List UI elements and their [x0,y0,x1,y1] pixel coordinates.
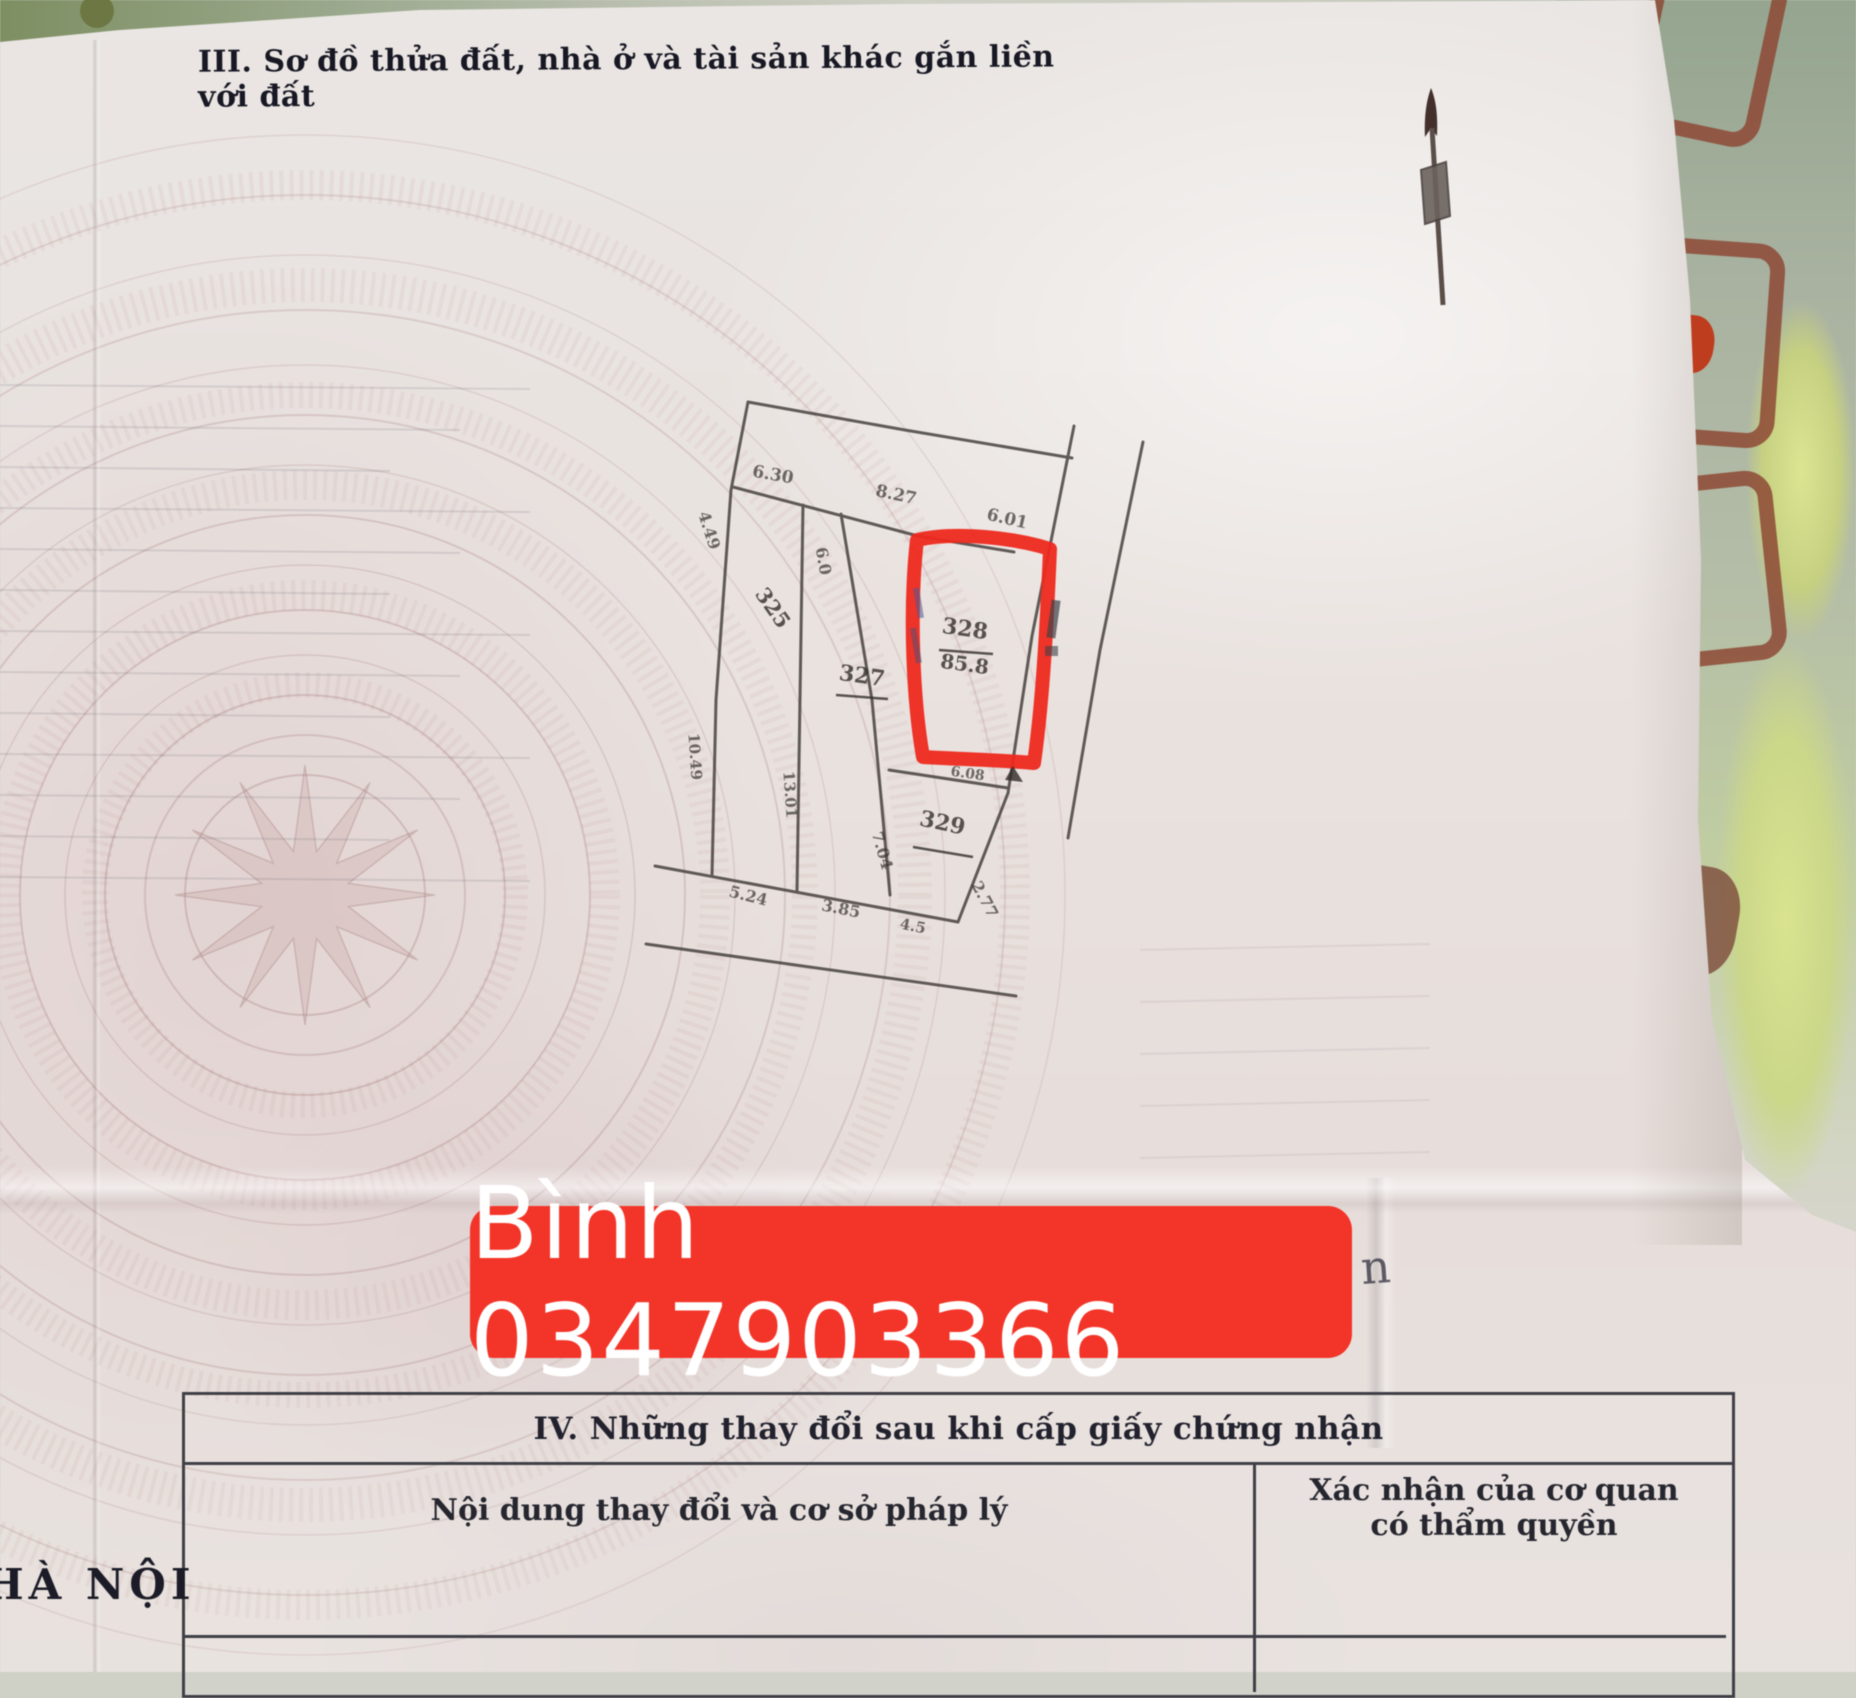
dimension-label: 6.0 [812,546,836,577]
plot-label-327: 327 [837,660,886,692]
dimension-label: 2.77 [967,878,1002,921]
plot-label-328: 328 [940,613,989,645]
dimension-label: 10.49 [684,733,705,781]
dimension-label: 3.85 [820,896,862,922]
dimension-label: 4.49 [694,509,724,552]
column-header-authority-confirmation: Xác nhận của cơ quan có thẩm quyền [1256,1465,1732,1692]
dimension-label: 7.04 [868,829,897,872]
contact-watermark-banner: Bình 0347903366 [470,1206,1352,1358]
table-title-row: IV. Những thay đổi sau khi cấp giấy chứn… [185,1395,1732,1465]
dimension-label: 6.01 [985,505,1030,534]
contact-name-phone: Bình 0347903366 [470,1165,1352,1399]
dimension-label: 8.27 [874,481,919,509]
north-arrow-icon [1421,88,1450,305]
photographed-land-certificate: III. Sơ đồ thửa đất, nhà ở và tài sản kh… [0,0,1856,1672]
table-row-divider [185,1635,1726,1638]
bleed-through-mark: n [1359,1239,1392,1295]
column-header-change-content: Nội dung thay đổi và cơ sở pháp lý [185,1465,1256,1692]
dimension-label: 4.5 [898,915,927,938]
section-iv-title: IV. Những thay đổi sau khi cấp giấy chứn… [533,1411,1383,1447]
plot-label-325: 325 [750,583,796,633]
plot-label-329: 329 [917,806,967,841]
city-label: HÀ NỘI [0,1560,196,1609]
dimension-label: 6.30 [751,462,795,489]
section-iv-table: IV. Những thay đổi sau khi cấp giấy chứn… [182,1392,1735,1698]
dimension-label: 13.01 [779,771,800,819]
